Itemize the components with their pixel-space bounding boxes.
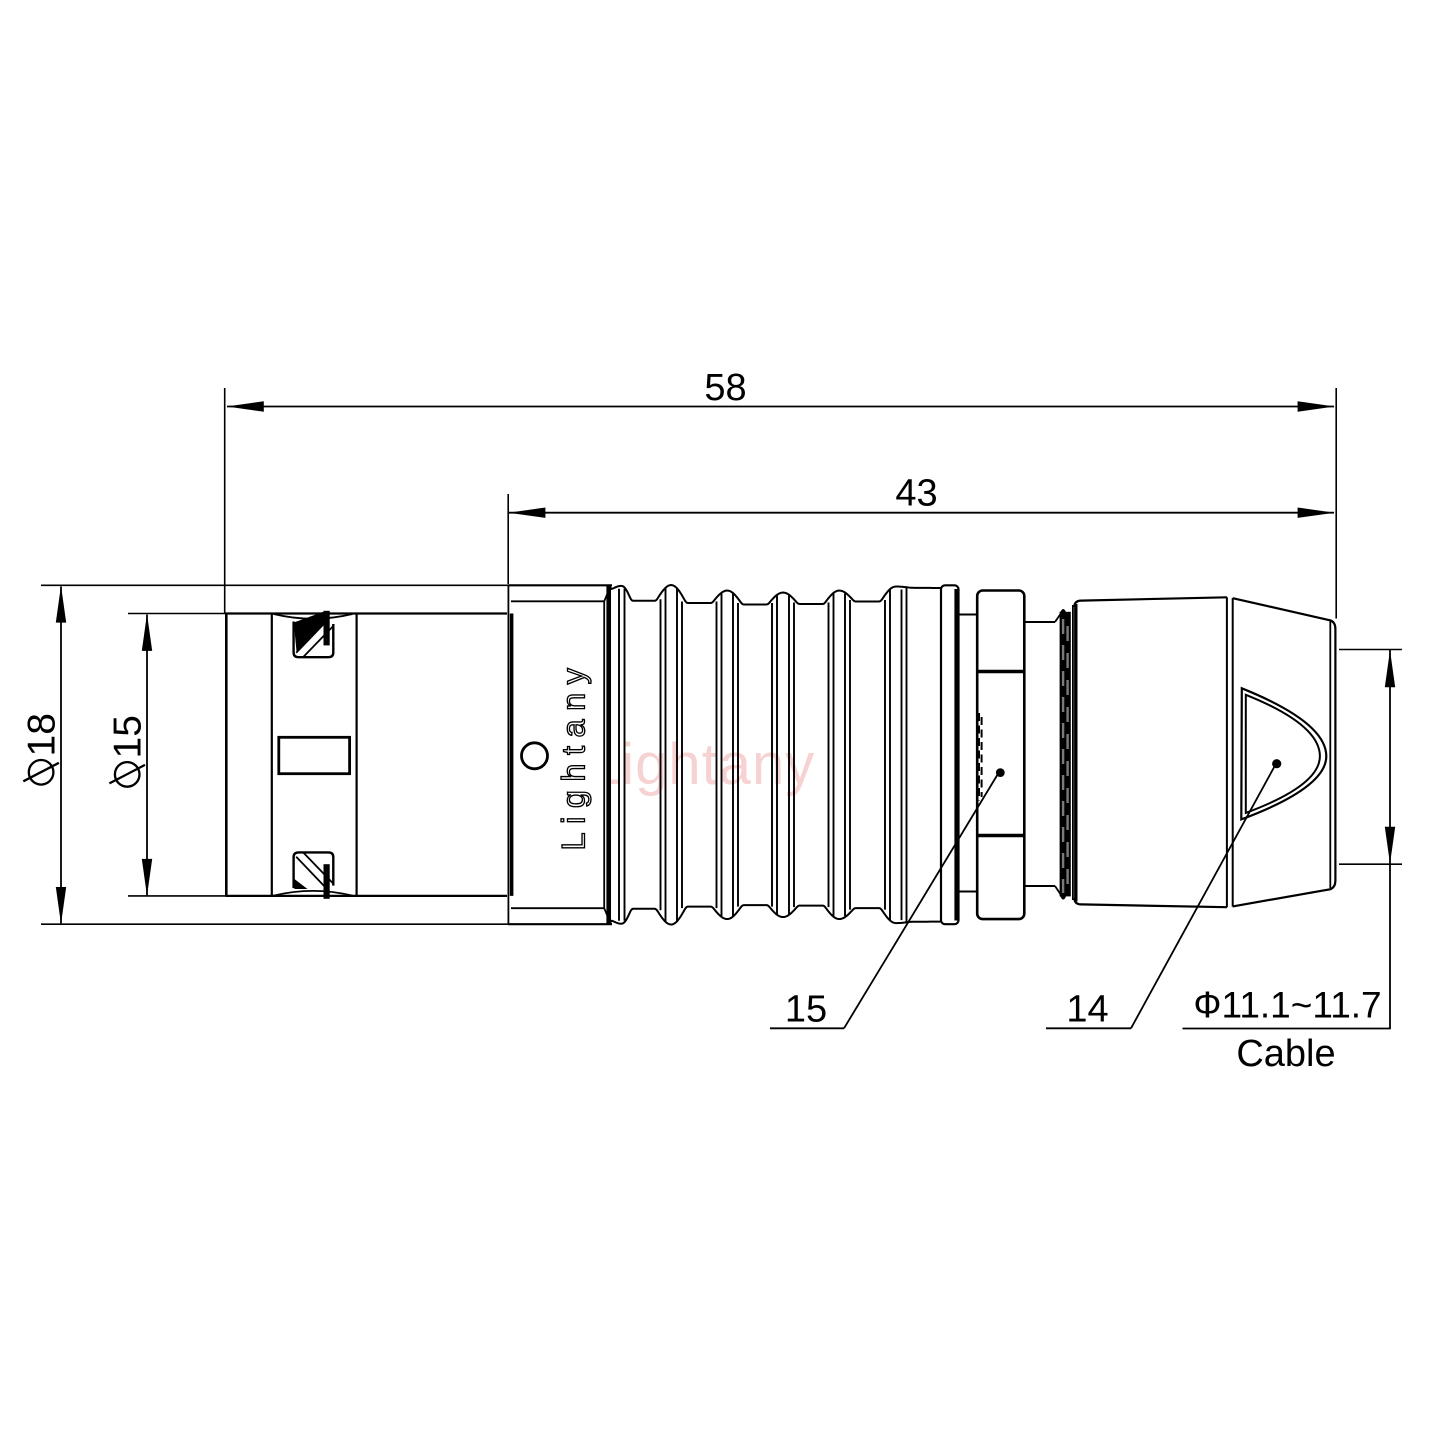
svg-text:58: 58 <box>704 367 746 409</box>
svg-text:Cable: Cable <box>1236 1033 1335 1075</box>
svg-text:43: 43 <box>895 473 937 515</box>
svg-text:Ф11.1~11.7: Ф11.1~11.7 <box>1193 985 1381 1026</box>
svg-text:15: 15 <box>107 715 150 758</box>
svg-text:Lightany: Lightany <box>556 660 592 851</box>
svg-text:Lightany: Lightany <box>588 732 815 797</box>
svg-text:18: 18 <box>21 713 64 756</box>
svg-text:15: 15 <box>785 988 827 1030</box>
svg-text:14: 14 <box>1066 988 1108 1030</box>
